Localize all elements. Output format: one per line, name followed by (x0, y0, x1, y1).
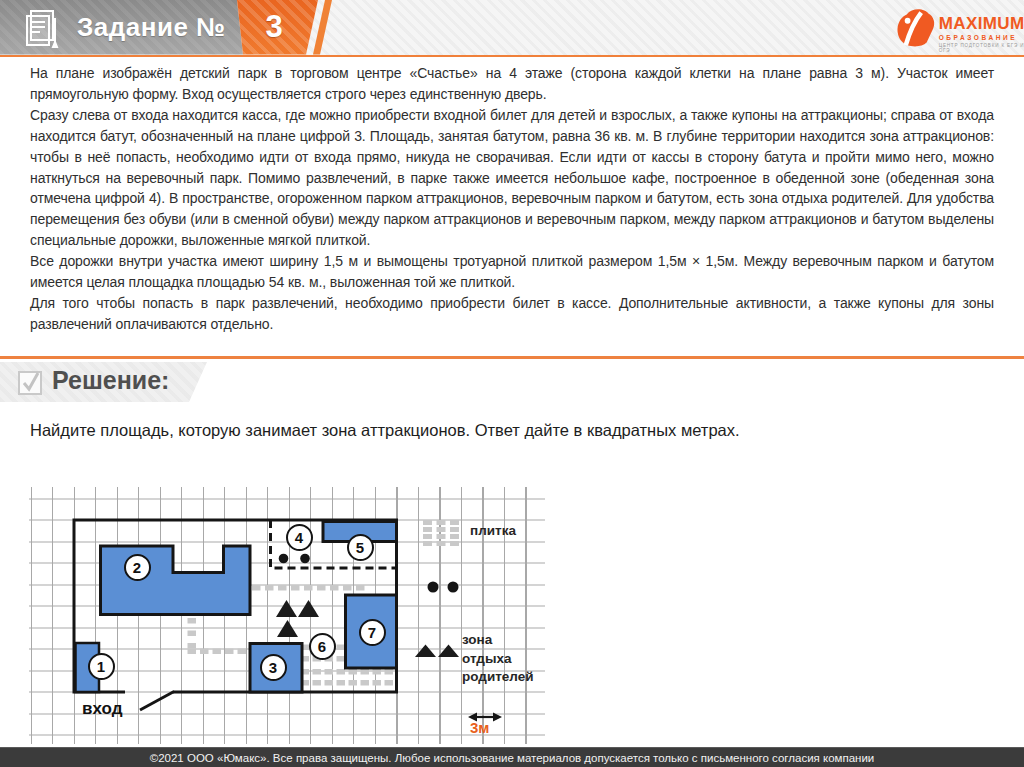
plan-marker-2: 2 (124, 554, 151, 581)
plan-marker-1: 1 (88, 653, 115, 680)
entrance-label: вход (82, 700, 122, 719)
park-plan-diagram: 1 2 3 4 5 6 7 вход плитка зона отдыха ро… (29, 487, 545, 744)
legend-tile-label: плитка (470, 522, 516, 541)
plan-marker-6: 6 (309, 633, 336, 660)
problem-paragraph: Для того чтобы попасть в парк развлечени… (30, 293, 994, 335)
copyright-footer: ©2021 ООО «Юмакс». Все права защищены. Л… (0, 747, 1024, 767)
legend-rest-zone-triangle (438, 645, 459, 658)
plan-marker-3: 3 (260, 654, 287, 681)
problem-paragraph: На плане изображён детский парк в торгов… (30, 63, 994, 105)
plan-marker-7: 7 (359, 619, 386, 646)
task-label: Задание № (77, 0, 226, 54)
document-icon (24, 8, 64, 50)
problem-paragraph: Все дорожки внутри участка имеют ширину … (30, 251, 994, 293)
banner-underline (0, 55, 1024, 58)
entrance-door-line (140, 692, 174, 711)
legend-rest-zone-line: родителей (462, 668, 534, 687)
logo-brand: MAXIMUM (939, 16, 1024, 32)
task-number: 3 (240, 0, 308, 54)
orange-divider (0, 356, 1024, 359)
rest-zone-triangle (276, 600, 297, 617)
solution-title: Решение: (52, 366, 169, 395)
maximum-logo-text: MAXIMUM ОБРАЗОВАНИЕ ЦЕНТР ПОДГОТОВКИ К Е… (939, 6, 1024, 53)
scale-label: 3м (470, 719, 489, 738)
maximum-logo-icon (894, 6, 936, 50)
checkbox-icon (17, 369, 45, 397)
problem-text: На плане изображён детский парк в торгов… (30, 63, 994, 335)
rest-zone-triangle (277, 620, 298, 637)
question-text: Найдите площадь, которую занимает зона а… (30, 421, 970, 440)
legend-dot (448, 582, 459, 593)
slide-page: Задание № 3 MAXIMUM ОБРАЗОВАНИЕ ЦЕНТР ПО… (0, 0, 1024, 767)
task-header-banner: Задание № 3 MAXIMUM ОБРАЗОВАНИЕ ЦЕНТР ПО… (0, 0, 1024, 57)
legend-rest-zone-line: отдыха (462, 650, 534, 669)
logo-tagline: ЦЕНТР ПОДГОТОВКИ К ЕГЭ И ОГЭ (939, 43, 1024, 53)
logo-subtitle: ОБРАЗОВАНИЕ (939, 34, 1024, 41)
legend-rest-zone-triangle (415, 645, 436, 658)
dining-table-dot (300, 554, 310, 564)
maximum-logo: MAXIMUM ОБРАЗОВАНИЕ ЦЕНТР ПОДГОТОВКИ К Е… (894, 6, 1024, 53)
legend-dot (428, 582, 439, 593)
problem-paragraph: Сразу слева от входа находится касса, гд… (30, 105, 994, 251)
plan-marker-4: 4 (286, 524, 313, 551)
copyright-text: ©2021 ООО «Юмакс». Все права защищены. Л… (150, 752, 875, 764)
legend-rest-zone-label: зона отдыха родителей (462, 631, 534, 687)
dining-table-dot (279, 554, 289, 564)
legend-rest-zone-line: зона (462, 631, 534, 650)
rope-park-shape (101, 546, 251, 615)
rest-zone-triangle (298, 600, 319, 617)
plan-marker-5: 5 (347, 534, 374, 561)
